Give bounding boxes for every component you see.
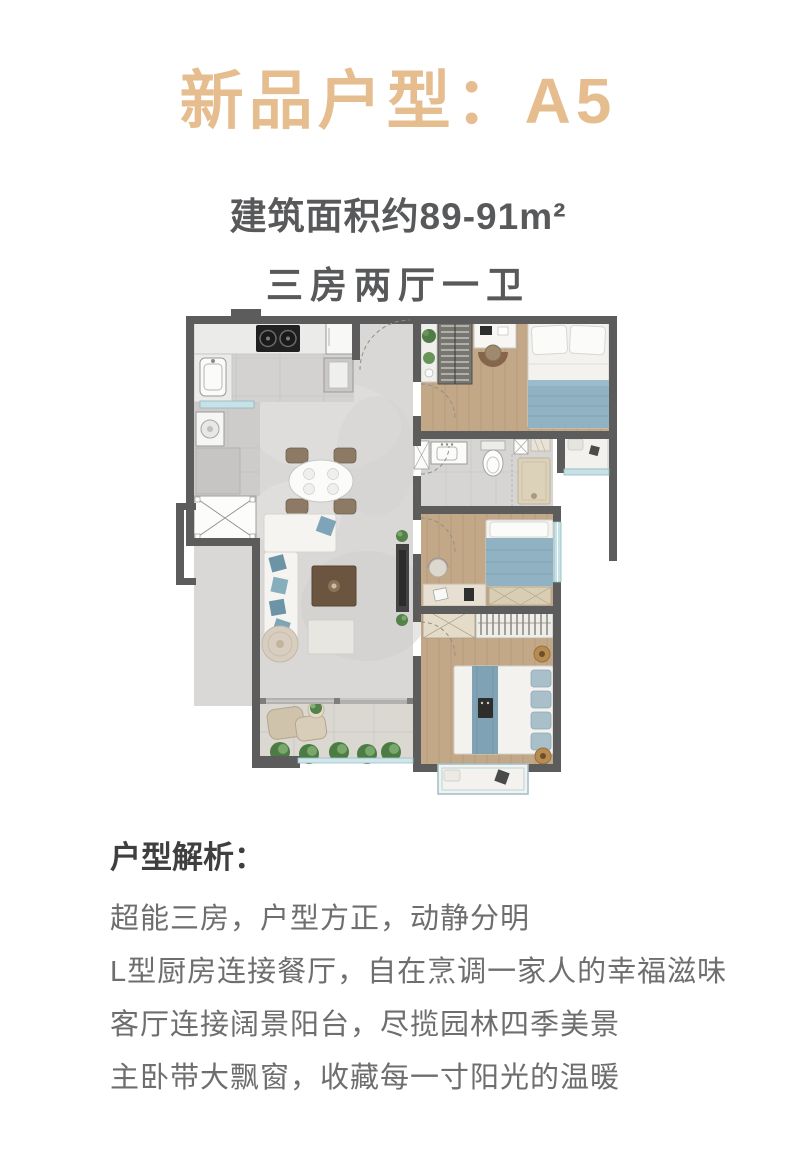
specs-block: 建筑面积约89-91m² 三房两厅一卫 (0, 186, 796, 309)
toilet-tank (481, 441, 505, 450)
desk (423, 584, 486, 606)
poster-page: 新品户型：A5 建筑面积约89-91m² 三房两厅一卫 (0, 0, 796, 1153)
floor-plan-svg (176, 306, 620, 806)
analysis-point: 超能三房，户型方正，动静分明 (110, 893, 730, 946)
dining-table (289, 460, 353, 502)
analysis-heading: 户型解析： (110, 832, 730, 877)
analysis-point: L型厨房连接餐厅，自在烹调一家人的幸福滋味 (110, 946, 730, 999)
chair (429, 559, 447, 577)
fridge (326, 323, 353, 354)
plant (396, 530, 408, 542)
analysis-point: 客厅连接阔景阳台，尽揽园林四季美景 (110, 999, 730, 1052)
sliding-door (260, 698, 413, 704)
dresser (489, 587, 551, 605)
toilet (483, 450, 503, 476)
plant (396, 614, 408, 626)
analysis-point: 主卧带大飘窗，收藏每一寸阳光的温暖 (110, 1052, 730, 1105)
bay-window-seat (564, 435, 608, 469)
poster-title: 新品户型：A5 (0, 50, 796, 142)
side-table (308, 620, 354, 654)
area-text: 建筑面积约89-91m² (0, 186, 796, 240)
analysis-block: 户型解析： 超能三房，户型方正，动静分明 L型厨房连接餐厅，自在烹调一家人的幸福… (110, 832, 730, 1105)
vanity-sink (431, 442, 467, 464)
floor-plan (176, 306, 620, 806)
layout-text: 三房两厅一卫 (0, 255, 796, 309)
